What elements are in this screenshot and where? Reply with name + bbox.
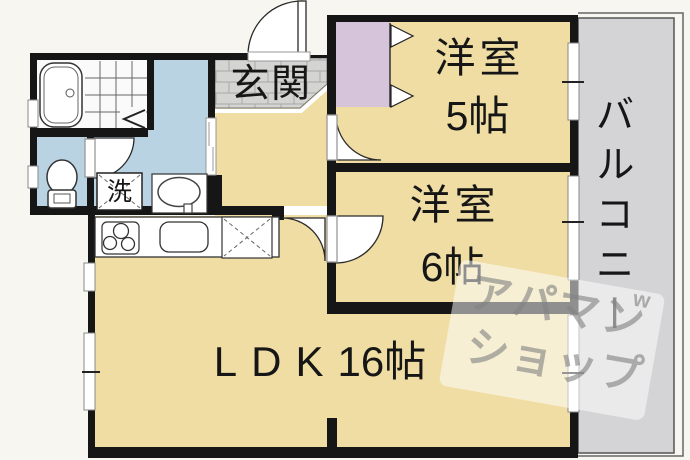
stove-burner-2 bbox=[104, 237, 117, 250]
bathtub bbox=[40, 63, 82, 127]
bath-window bbox=[28, 100, 38, 127]
toilet-tank bbox=[48, 190, 76, 208]
washroom-sliding-door bbox=[206, 118, 216, 175]
entrance-label: 玄関 bbox=[215, 65, 327, 104]
toilet-bowl bbox=[47, 160, 77, 194]
laundry-label: 洗 bbox=[97, 180, 142, 205]
room5-name: 洋室 bbox=[405, 38, 550, 79]
bath-door-gap bbox=[120, 107, 146, 127]
ldk-name: LDK bbox=[214, 338, 338, 385]
room6-name: 洋室 bbox=[380, 185, 525, 226]
entrance-door-leaf bbox=[298, 1, 306, 55]
room6-window bbox=[568, 176, 579, 280]
kitchen-sink bbox=[160, 222, 208, 252]
toilet-door-gap bbox=[85, 139, 95, 177]
ldk-window-1 bbox=[84, 263, 95, 291]
room6-door-leaf bbox=[327, 216, 337, 262]
floor-plan: 玄関 洋室 5帖 洋室 6帖 LDK16帖 バルコニー 洗 アパマン ショップ … bbox=[0, 0, 690, 460]
toilet-window bbox=[28, 166, 38, 188]
stove-burner-1 bbox=[114, 224, 129, 239]
room5-door-leaf bbox=[327, 115, 337, 160]
bathtub-drain bbox=[66, 89, 74, 97]
closet-floor bbox=[335, 22, 390, 107]
vanity-faucet bbox=[184, 204, 192, 213]
entrance-sill bbox=[248, 52, 310, 61]
room5-size: 5帖 bbox=[405, 96, 550, 137]
ldk-door-gap bbox=[284, 206, 327, 215]
vanity-basin bbox=[158, 178, 200, 207]
stove-burner-3 bbox=[122, 238, 135, 251]
ldk-size: 16帖 bbox=[337, 338, 426, 385]
entrance-door-swing bbox=[248, 1, 302, 55]
